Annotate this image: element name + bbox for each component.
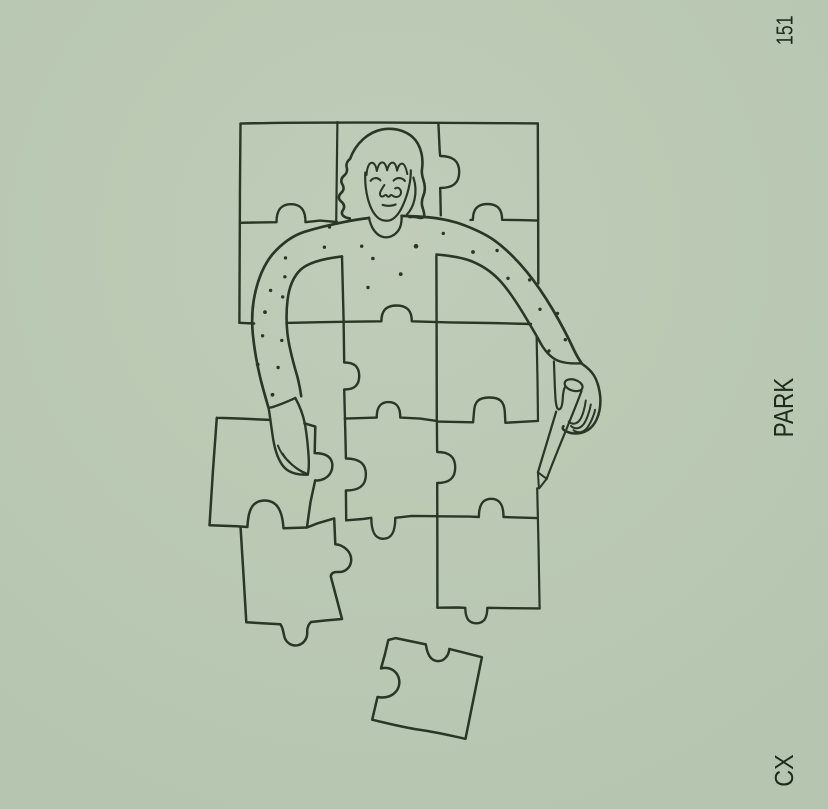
- svg-text:PARK: PARK: [769, 378, 800, 438]
- svg-text:CX: CX: [771, 754, 799, 786]
- svg-text:151: 151: [772, 15, 798, 45]
